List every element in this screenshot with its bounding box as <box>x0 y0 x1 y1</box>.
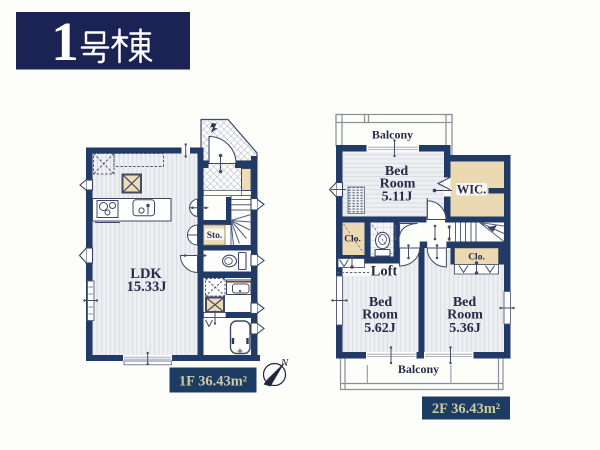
svg-text:Loft: Loft <box>371 264 398 280</box>
svg-text:1F 36.43m²: 1F 36.43m² <box>179 374 247 390</box>
svg-text:WIC.: WIC. <box>457 183 487 197</box>
svg-text:Clo.: Clo. <box>344 235 361 245</box>
svg-text:Clo.: Clo. <box>468 253 485 263</box>
svg-text:5.36J: 5.36J <box>449 321 481 336</box>
svg-text:2F 36.43m²: 2F 36.43m² <box>432 401 500 417</box>
svg-text:5.11J: 5.11J <box>382 190 413 205</box>
svg-text:Balcony: Balcony <box>372 128 413 142</box>
svg-text:N: N <box>280 357 289 369</box>
svg-text:Balcony: Balcony <box>398 362 439 376</box>
svg-text:5.62J: 5.62J <box>364 321 396 336</box>
svg-text:15.33J: 15.33J <box>127 279 167 295</box>
svg-text:Sto.: Sto. <box>207 231 223 241</box>
svg-text:1: 1 <box>51 11 79 72</box>
